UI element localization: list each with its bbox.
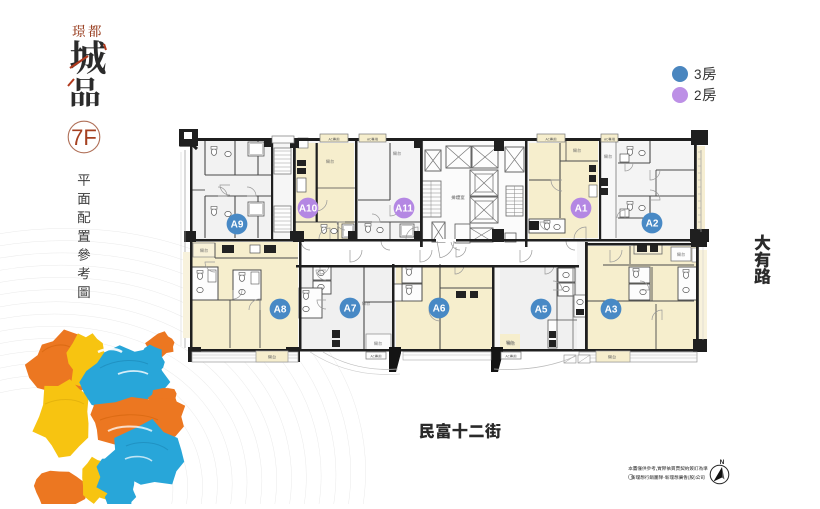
svg-text:7F: 7F: [71, 125, 97, 150]
svg-text:A6: A6: [433, 303, 446, 314]
svg-text:A5: A5: [535, 304, 548, 315]
svg-text:N: N: [720, 459, 725, 466]
svg-text:A7: A7: [344, 303, 357, 314]
svg-text:A11: A11: [395, 203, 413, 214]
svg-text:A3: A3: [605, 304, 618, 315]
svg-text:A9: A9: [231, 219, 244, 230]
svg-text:2: 2: [694, 88, 702, 103]
svg-text:A1: A1: [575, 203, 588, 214]
svg-text:A8: A8: [274, 304, 287, 315]
svg-text:A2: A2: [646, 218, 659, 229]
svg-text:3: 3: [694, 67, 702, 82]
svg-text:A10: A10: [299, 203, 318, 214]
